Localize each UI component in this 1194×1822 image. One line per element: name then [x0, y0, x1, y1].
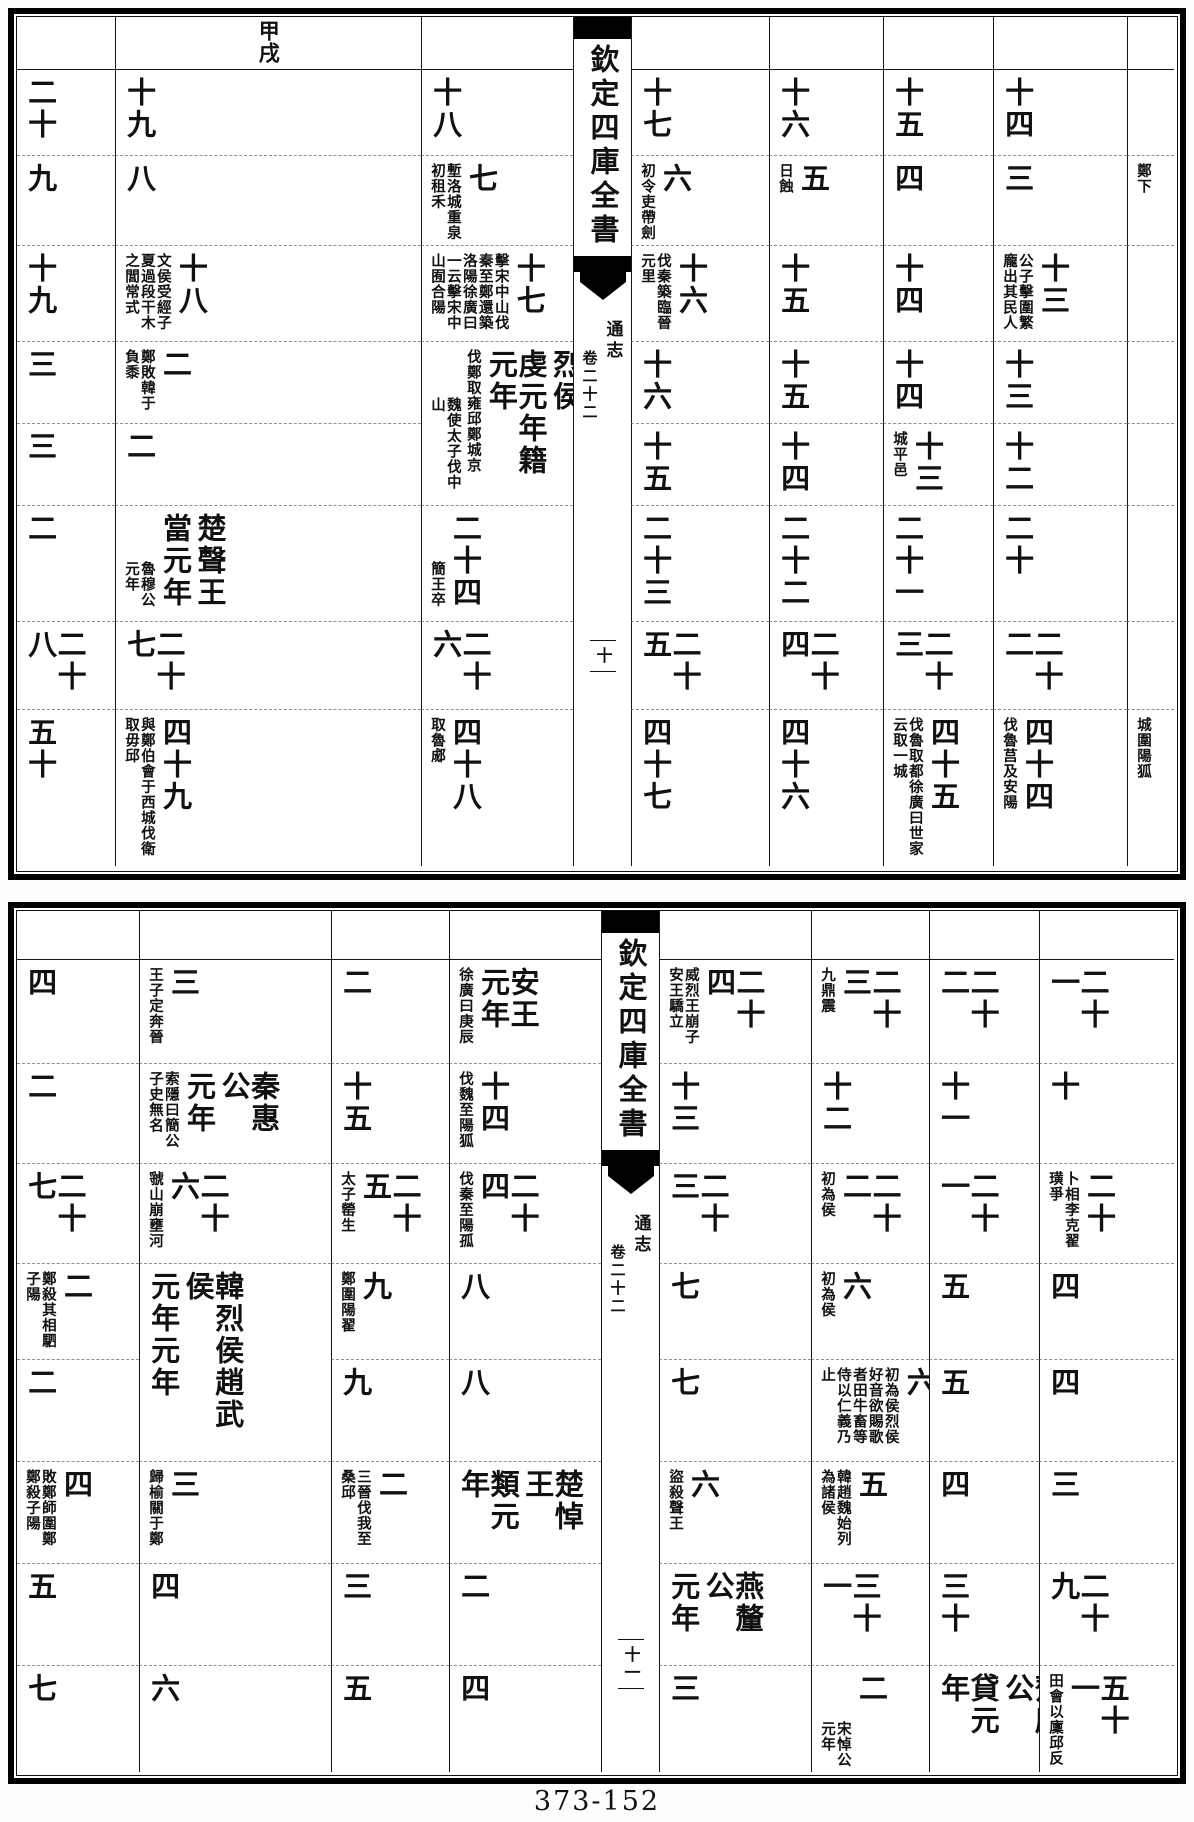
table-cell: 七: [17, 1665, 139, 1772]
spine-black-bar: [574, 256, 631, 272]
cell-content: 十五: [632, 424, 679, 505]
cell-content: 二: [17, 1360, 64, 1461]
table-cell: 三: [17, 423, 115, 505]
cell-content: [770, 17, 782, 69]
cell-main-text: 二十一: [938, 1171, 997, 1259]
table-cell: [1127, 341, 1174, 423]
cell-main-text: 五: [938, 1367, 968, 1457]
table-cell: 楚悼王類元年: [449, 1461, 601, 1563]
cell-main-text: 二: [376, 1469, 406, 1559]
table-cell: 燕釐公元年: [659, 1563, 811, 1665]
cell-main-text: 六: [660, 163, 690, 241]
table-cell: 十: [1039, 1063, 1174, 1163]
cell-content: 十三公子擊圍繁龐出其民人: [994, 246, 1076, 341]
table-cell: 二十六虢山崩壅河: [139, 1163, 331, 1263]
table-cell: 二十: [993, 505, 1127, 621]
cell-content: [632, 17, 644, 69]
table-cell: 二十九: [1039, 1563, 1174, 1665]
work-title: 通志: [629, 1214, 654, 1384]
cell-main-text: 二十五: [360, 1171, 419, 1259]
table-cell: 四十五伐魯取都徐廣曰世家云取一城: [883, 709, 993, 866]
cell-main-text: 三: [168, 967, 198, 1059]
cell-content: 十八文侯受經子夏過段干木之閭常式: [116, 246, 214, 341]
cell-main-text: 二十五: [640, 629, 699, 705]
table-cell: 二十三: [631, 505, 769, 621]
cell-annotation: 取魯郕: [429, 717, 445, 862]
cell-content: 六初為侯: [812, 1264, 879, 1359]
cell-annotation: 敗鄭師圍鄭鄭殺子陽: [24, 1469, 56, 1559]
cell-main-text: 七: [668, 1271, 698, 1355]
cell-annotation: 初為侯烈侯好音欲賜歌者田牛畜等侍以仁義乃止: [819, 1367, 899, 1457]
cell-main-text: 三: [1002, 163, 1032, 241]
cell-main-text: 二: [25, 1367, 55, 1457]
cell-main-text: 元年: [668, 1571, 698, 1661]
cell-main-text: 十三: [912, 431, 942, 501]
cell-main-text: 七: [25, 1673, 55, 1768]
cell-main-text: 四: [148, 1571, 178, 1661]
cell-main-text: 二十一: [892, 513, 922, 617]
table-cell: 三: [331, 1563, 449, 1665]
cell-content: 十四: [994, 70, 1041, 155]
cell-main-text: 三: [25, 349, 55, 419]
cell-content: 四敗鄭師圍鄭鄭殺子陽: [17, 1462, 99, 1563]
table-cell: 二十七: [17, 1163, 139, 1263]
table-cell: 三: [993, 155, 1127, 245]
cell-main-text: 五: [340, 1673, 370, 1768]
cell-content: 二: [450, 1564, 497, 1665]
work-title: 通志: [601, 320, 626, 490]
cell-main-text: 二: [25, 1071, 55, 1159]
cell-content: 安王元年徐廣曰庚辰: [450, 960, 546, 1063]
table-cell: 韓烈侯趙武侯元年元年: [139, 1263, 331, 1461]
cell-main-text: 四: [61, 1469, 91, 1559]
cell-main-text: 二十六: [168, 1171, 227, 1259]
cell-main-text: 二十一: [1048, 967, 1107, 1059]
spine-title: 欽定四庫全書: [588, 44, 617, 248]
cell-main-text: 二十: [25, 77, 55, 151]
cell-content: 二十四威烈王崩子安王驕立: [660, 960, 772, 1063]
cell-content: 六初令吏帶劍: [632, 156, 699, 245]
page-frame-top: 欽定四庫全書通志卷二十二十甲戌二十九十九三三二二十八五十十九八十八文侯受經子夏過…: [8, 8, 1186, 880]
cell-main-text: 九: [25, 163, 55, 241]
table-cell: 二宋悼公元年: [811, 1665, 929, 1772]
table-cell: [421, 17, 573, 69]
cell-main-text: 二: [458, 1571, 488, 1661]
cell-content: 二十: [994, 506, 1041, 621]
table-cell: 六盜殺聲王: [659, 1461, 811, 1563]
cell-annotation: 鄭圍陽翟: [339, 1271, 355, 1355]
table-cell: 十六: [769, 69, 883, 155]
cell-content: 十三: [660, 1064, 707, 1163]
table-cell: [1127, 505, 1174, 621]
cell-content: 七: [660, 1264, 707, 1359]
cell-content: 九鄭圍陽翟: [332, 1264, 399, 1359]
cell-content: [1128, 424, 1140, 505]
cell-annotation: 日蝕: [777, 163, 793, 241]
page-marker: 十一: [618, 1639, 644, 1689]
cell-content: 二鄭敗韓于負黍: [116, 342, 198, 423]
cell-annotation: 文侯受經子夏過段干木之閭常式: [123, 253, 171, 337]
cell-content: 三: [1040, 1462, 1087, 1563]
cell-main-text: 四十五: [928, 717, 958, 862]
table-cell: 四十九與鄭伯會于西城伐衛取毋邱: [115, 709, 421, 866]
cell-main-text: 安王元年: [478, 967, 537, 1059]
table-cell: 二十二: [929, 959, 1039, 1063]
table-cell: 十三城平邑: [883, 423, 993, 505]
cell-annotation: 塹洛城重泉初租禾: [429, 163, 461, 241]
table-cell: 十九: [115, 69, 421, 155]
cell-main-text: 十五: [340, 1071, 370, 1159]
table-cell: 十五: [631, 423, 769, 505]
table-cell: 二三晉伐我至桑邱: [331, 1461, 449, 1563]
fascicle-label: 通志卷二十二: [608, 1214, 654, 1384]
table-cell: [139, 911, 331, 959]
table-cell: 十一: [929, 1063, 1039, 1163]
cell-content: 十一: [930, 1064, 977, 1163]
cell-main-text: 二十三: [892, 629, 951, 705]
cell-annotation: 鄭下: [1135, 163, 1151, 241]
cell-content: 十六伐秦築臨晉元里: [632, 246, 714, 341]
cell-main-text: 二十九: [1048, 1571, 1107, 1661]
spine-top-bar: [574, 17, 631, 39]
cell-main-text: 貸元年: [938, 1673, 997, 1768]
cell-content: 二十一: [930, 1164, 1006, 1263]
cell-content: 四: [1040, 1264, 1087, 1359]
table-cell: [1127, 245, 1174, 341]
cell-content: 三王子定奔晉: [140, 960, 207, 1063]
cell-main-text: 四: [458, 1673, 488, 1768]
cell-main-text: 二十四: [778, 629, 837, 705]
table-cell: 四十四伐魯莒及安陽: [993, 709, 1127, 866]
cell-main-text: 七: [466, 163, 496, 241]
table-cell: [1127, 423, 1174, 505]
cell-content: 三歸榆關于鄭: [140, 1462, 207, 1563]
table-cell: 二十四: [769, 621, 883, 709]
table-cell: 二十二初為侯: [811, 1163, 929, 1263]
table-cell: 四: [139, 1563, 331, 1665]
cell-content: 二十三九鼎震: [812, 960, 908, 1063]
cell-content: [140, 911, 152, 959]
cell-annotation: 三晉伐我至桑邱: [339, 1469, 371, 1559]
cell-main-text: 五: [798, 163, 828, 241]
cell-main-text: 九: [340, 1367, 370, 1457]
cell-main-text: 二十: [1084, 1171, 1114, 1259]
table-cell: 十七: [631, 69, 769, 155]
cell-content: 二十三: [884, 622, 960, 709]
chronology-table-bottom: 欽定四庫全書通志卷二十二十一四二二十七二鄭殺其相駟子陽二四敗鄭師圍鄭鄭殺子陽五七…: [16, 910, 1178, 1776]
cell-main-text: 十二: [820, 1071, 850, 1159]
cell-content: 十五: [332, 1064, 379, 1163]
cell-main-text: 三: [1048, 1469, 1078, 1559]
cell-main-text: 二十四: [450, 513, 480, 617]
cell-annotation: 初為侯: [819, 1271, 835, 1355]
cell-content: [930, 911, 942, 959]
cell-content: 三: [994, 156, 1041, 245]
table-cell: [17, 911, 139, 959]
table-cell: 十二: [993, 423, 1127, 505]
book-spine: 欽定四庫全書通志卷二十二十一: [601, 911, 659, 1772]
cell-main-text: 五: [856, 1469, 886, 1559]
table-cell: [811, 911, 929, 959]
table-cell: 三歸榆關于鄭: [139, 1461, 331, 1563]
cell-main-text: 二十八: [25, 629, 84, 705]
cell-main-text: 十五: [778, 349, 808, 419]
table-cell: 十六伐秦築臨晉元里: [631, 245, 769, 341]
cell-content: 二: [332, 960, 379, 1063]
cell-main-text: 五十: [25, 717, 55, 862]
cell-content: 十六: [632, 342, 679, 423]
cell-annotation: 九鼎震: [819, 967, 835, 1059]
cell-annotation: 盜殺聲王: [667, 1469, 683, 1559]
table-cell: 二十三九鼎震: [811, 959, 929, 1063]
table-cell: 二十三: [883, 621, 993, 709]
cell-content: 八: [450, 1264, 497, 1359]
table-cell: 二十四伐秦至陽孤: [449, 1163, 601, 1263]
fascicle-label: 通志卷二十二: [580, 320, 626, 490]
cell-main-text: 二十三: [640, 513, 670, 617]
cell-main-text: 韓景侯趙烈侯: [550, 349, 573, 501]
cell-content: 十五: [770, 246, 817, 341]
table-cell: 四: [449, 1665, 601, 1772]
cell-content: 四: [17, 960, 64, 1063]
cell-content: 二十四: [770, 622, 846, 709]
table-cell: 二: [331, 959, 449, 1063]
table-cell: 九: [331, 1359, 449, 1461]
table-cell: 二十三: [659, 1163, 811, 1263]
cell-content: 三: [17, 342, 64, 423]
cell-content: 二: [116, 424, 163, 505]
cell-content: 二十四簡王卒: [422, 506, 489, 621]
cell-main-text: 虔元年籍元年: [486, 349, 545, 501]
chronology-table-top: 欽定四庫全書通志卷二十二十甲戌二十九十九三三二二十八五十十九八十八文侯受經子夏過…: [16, 16, 1178, 872]
table-cell: 四十六: [769, 709, 883, 866]
cell-main-text: 韓烈侯趙武侯: [183, 1271, 242, 1457]
table-cell: 二十七: [115, 621, 421, 709]
cell-main-text: 十一: [938, 1071, 968, 1159]
table-cell: 三: [1039, 1461, 1174, 1563]
cell-annotation: 初令吏帶劍: [639, 163, 655, 241]
cell-main-text: 元年: [184, 1071, 214, 1159]
cell-annotation: 伐秦築臨晉元里: [639, 253, 671, 337]
cell-content: 十五: [884, 70, 931, 155]
cell-main-text: 二十: [1002, 513, 1032, 617]
cell-main-text: 十: [1048, 1071, 1078, 1159]
cell-main-text: 二十二: [938, 967, 997, 1059]
cell-content: 四: [930, 1462, 977, 1563]
table-cell: 五韓趙魏始列為諸侯: [811, 1461, 929, 1563]
table-cell: 四: [1039, 1263, 1174, 1359]
table-cell: 十三公子擊圍繁龐出其民人: [993, 245, 1127, 341]
cell-main-text: 六: [688, 1469, 718, 1559]
table-cell: 五十: [17, 709, 115, 866]
cell-content: 二宋悼公元年: [812, 1666, 894, 1772]
cell-main-text: 二十三: [840, 967, 899, 1059]
cell-content: 七: [17, 1666, 64, 1772]
cell-main-text: 十八: [430, 77, 460, 151]
cell-content: 二: [17, 1064, 64, 1163]
cell-content: [17, 17, 29, 69]
table-cell: 四十八取魯郕: [421, 709, 573, 866]
cell-main-text: 十七: [640, 77, 670, 151]
cell-main-text: 十八: [176, 253, 206, 337]
table-cell: 二十六: [421, 621, 573, 709]
cell-main-text: 三: [668, 1673, 698, 1768]
table-cell: [1127, 621, 1174, 709]
table-cell: 六初為侯烈侯好音欲賜歌者田牛畜等侍以仁義乃止: [811, 1359, 929, 1461]
spine-black-bar: [602, 1150, 659, 1166]
cell-main-text: 十七: [514, 253, 544, 337]
table-cell: 十三: [993, 341, 1127, 423]
cell-main-text: 二十二: [1002, 629, 1061, 705]
cell-content: 九: [332, 1360, 379, 1461]
cell-content: 十七擊宋中山伐秦至鄭還築洛陽徐廣曰一云擊宋中山囿合陽: [422, 246, 552, 341]
cell-content: 齊康公貸元年: [930, 1666, 1039, 1772]
cell-content: 二十三: [660, 1164, 736, 1263]
cell-content: 二十: [17, 70, 64, 155]
cell-content: 二十二: [770, 506, 817, 621]
cell-main-text: 秦惠公: [218, 1071, 277, 1159]
table-cell: 六初令吏帶劍: [631, 155, 769, 245]
cell-main-text: 十五: [640, 431, 670, 501]
cell-main-text: 十三: [668, 1071, 698, 1159]
table-cell: [1039, 911, 1174, 959]
cell-main-text: 十五: [778, 253, 808, 337]
table-cell: 鄭下: [1127, 155, 1174, 245]
cell-main-text: 五: [938, 1271, 968, 1355]
cell-content: 四十六: [770, 710, 817, 866]
cell-content: 四十四伐魯莒及安陽: [994, 710, 1061, 866]
table-cell: 二十: [17, 69, 115, 155]
cell-main-text: 八: [458, 1271, 488, 1355]
cell-main-text: 三十: [938, 1571, 968, 1661]
cell-content: 六初為侯烈侯好音欲賜歌者田牛畜等侍以仁義乃止: [812, 1360, 929, 1461]
cell-content: 十三: [994, 342, 1041, 423]
cell-content: 二十四伐秦至陽孤: [450, 1164, 546, 1263]
spine-top-bar: [602, 911, 659, 933]
cell-main-text: 二: [61, 1271, 91, 1355]
cell-main-text: 十四: [892, 253, 922, 337]
table-cell: 五: [929, 1359, 1039, 1461]
cell-content: 七: [660, 1360, 707, 1461]
table-cell: [1127, 69, 1174, 155]
cyclical-year-cell: 甲戌: [115, 17, 421, 69]
table-cell: [659, 911, 811, 959]
cell-content: 四十七: [632, 710, 679, 866]
cell-main-text: 十九: [25, 253, 55, 337]
table-cell: 五: [929, 1263, 1039, 1359]
page-frame-bottom: 欽定四庫全書通志卷二十二十一四二二十七二鄭殺其相駟子陽二四敗鄭師圍鄭鄭殺子陽五七…: [8, 902, 1186, 1784]
table-cell: 三王子定奔晉: [139, 959, 331, 1063]
table-cell: 齊康公貸元年: [929, 1665, 1039, 1772]
cell-content: 四: [884, 156, 931, 245]
cell-content: 十四: [884, 246, 931, 341]
cell-content: 韓烈侯趙武侯元年元年: [140, 1264, 251, 1461]
table-cell: 十四: [993, 69, 1127, 155]
plate-number: 373-152: [0, 1786, 1194, 1817]
table-cell: 十四: [883, 341, 993, 423]
cell-annotation: 鄭敗韓于負黍: [123, 349, 155, 419]
cell-main-text: 四十八: [450, 717, 480, 862]
fascicle-number: 卷二十二: [608, 1244, 629, 1384]
table-cell: 二十二: [993, 621, 1127, 709]
cell-content: 楚悼王類元年: [450, 1462, 590, 1563]
cell-content: 十二: [994, 424, 1041, 505]
table-cell: 七塹洛城重泉初租禾: [421, 155, 573, 245]
cell-annotation: 宋悼公元年: [819, 1721, 851, 1768]
cell-content: 五韓趙魏始列為諸侯: [812, 1462, 894, 1563]
table-cell: 五十一田會以廩邱反: [1039, 1665, 1174, 1772]
cell-content: 五: [332, 1666, 379, 1772]
table-cell: 韓景侯趙烈侯虔元年籍元年伐鄭取雍邱鄭城京魏使太子伐中山: [421, 341, 573, 505]
cell-main-text: 九: [360, 1271, 390, 1355]
table-cell: 楚聲王當元年魯穆公元年: [115, 505, 421, 621]
cell-annotation: 威烈王崩子安王驕立: [667, 967, 699, 1059]
cell-content: 十九: [116, 70, 163, 155]
table-cell: 二十四簡王卒: [421, 505, 573, 621]
cell-content: 二: [17, 506, 64, 621]
cell-main-text: 五十一: [1068, 1673, 1127, 1768]
cell-annotation: 城圍陽狐: [1135, 717, 1151, 862]
table-cell: 二十一: [883, 505, 993, 621]
cell-content: [660, 911, 672, 959]
cell-main-text: 二十七: [124, 629, 183, 705]
cell-annotation: 鄭殺其相駟子陽: [24, 1271, 56, 1355]
cell-main-text: 六: [904, 1367, 929, 1457]
cell-main-text: 四: [1048, 1271, 1078, 1355]
table-cell: 九鄭圍陽翟: [331, 1263, 449, 1359]
cell-main-text: 二十六: [430, 629, 489, 705]
table-cell: 二十一: [1039, 959, 1174, 1063]
cell-content: [332, 911, 344, 959]
cell-content: [422, 17, 434, 69]
cell-content: 三: [332, 1564, 379, 1665]
cell-content: 十二: [812, 1064, 859, 1163]
table-cell: [769, 17, 883, 69]
cell-main-text: 八: [458, 1367, 488, 1457]
cell-main-text: 五: [25, 1571, 55, 1661]
cell-content: 六盜殺聲王: [660, 1462, 727, 1563]
cell-main-text: 十三: [1038, 253, 1068, 337]
cell-content: 二十二初為侯: [812, 1164, 908, 1263]
cell-annotation: 城平邑: [891, 431, 907, 501]
table-cell: 五日蝕: [769, 155, 883, 245]
cell-content: 四十五伐魯取都徐廣曰世家云取一城: [884, 710, 966, 866]
table-cell: 六: [139, 1665, 331, 1772]
cell-main-text: 三十一: [820, 1571, 879, 1661]
cell-annotation: 韓趙魏始列為諸侯: [819, 1469, 851, 1559]
cell-content: 六: [140, 1666, 187, 1772]
cell-content: [1128, 70, 1140, 155]
cell-content: 秦惠公元年索隱曰簡公子史無名: [140, 1064, 287, 1163]
cell-main-text: 二: [25, 513, 55, 617]
table-cell: 二十八: [17, 621, 115, 709]
cell-main-text: 當元年: [160, 513, 190, 617]
cell-main-text: 十五: [892, 77, 922, 151]
cell-content: [1128, 506, 1140, 621]
cell-annotation: 伐魯取都徐廣曰世家云取一城: [891, 717, 923, 862]
table-cell: [17, 17, 115, 69]
cell-content: 十八: [422, 70, 469, 155]
cell-content: 鄭下: [1128, 156, 1160, 245]
table-cell: 三: [659, 1665, 811, 1772]
table-cell: 十九: [17, 245, 115, 341]
cell-content: 二三晉伐我至桑邱: [332, 1462, 414, 1563]
fascicle-number: 卷二十二: [580, 350, 601, 490]
table-cell: 四: [1039, 1359, 1174, 1461]
spine-title: 欽定四庫全書: [616, 938, 645, 1142]
cell-main-text: 二十二: [778, 513, 808, 617]
cell-content: 三: [660, 1666, 707, 1772]
